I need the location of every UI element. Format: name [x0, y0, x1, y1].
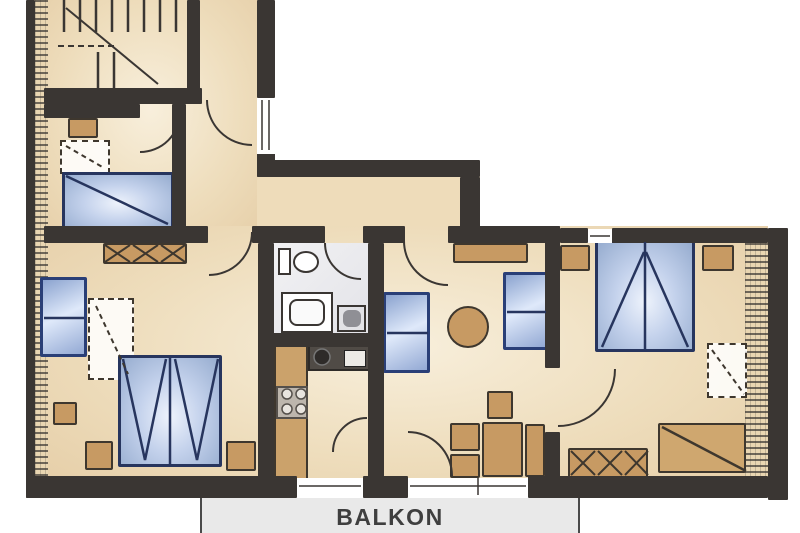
- wardrobe-dashed: [707, 343, 747, 398]
- balcony: BALKON: [200, 498, 580, 533]
- kitchen-drainer: [344, 350, 366, 367]
- wall-segment: [545, 226, 560, 368]
- wall-segment: [44, 226, 208, 243]
- wall-segment: [460, 177, 480, 232]
- nightstand: [560, 245, 590, 271]
- sofa: [383, 292, 430, 373]
- dining-table: [482, 422, 523, 477]
- chair: [450, 454, 480, 478]
- wall-segment: [26, 476, 297, 498]
- wall-segment: [363, 476, 408, 498]
- window: [297, 478, 363, 495]
- wall-segment: [545, 432, 560, 480]
- hatched-wall-right: [745, 243, 768, 476]
- single-bed-brown: [658, 423, 746, 473]
- balcony-label: BALKON: [336, 504, 443, 531]
- wall-segment: [257, 160, 480, 177]
- stove: [276, 386, 308, 419]
- single-bed: [62, 172, 174, 229]
- wall-segment: [252, 226, 325, 243]
- sideboard: [453, 243, 528, 263]
- drawer-chest: [103, 243, 187, 264]
- wall-segment: [258, 243, 274, 485]
- double-bed: [595, 240, 695, 352]
- wall-segment: [768, 228, 788, 500]
- wall-segment: [258, 333, 384, 347]
- bench: [525, 424, 545, 477]
- wall-segment: [44, 88, 202, 104]
- sofa: [503, 272, 548, 350]
- wall-segment: [448, 226, 560, 243]
- wall-segment: [257, 0, 275, 98]
- washbasin-bowl: [289, 299, 325, 326]
- window: [588, 229, 612, 243]
- wall-segment: [612, 228, 768, 243]
- wall-segment: [528, 476, 768, 498]
- chair: [450, 423, 480, 451]
- wall-segment: [172, 104, 186, 232]
- wall-segment: [187, 0, 200, 90]
- wall-segment: [44, 104, 140, 118]
- window: [408, 478, 528, 495]
- nightstand: [85, 441, 113, 470]
- drawer-chest: [568, 448, 648, 478]
- toilet-tank: [278, 248, 291, 275]
- wall-segment: [26, 0, 35, 498]
- nightstand: [226, 441, 256, 471]
- window: [257, 98, 275, 154]
- double-bed: [118, 355, 222, 467]
- bidet-bowl: [343, 310, 361, 327]
- chair: [487, 391, 513, 419]
- stool: [53, 402, 77, 425]
- sofa: [40, 277, 87, 357]
- bedside-table: [68, 118, 98, 138]
- wall-segment: [560, 228, 588, 243]
- floor-plan: BALKON: [0, 0, 800, 533]
- nightstand: [702, 245, 734, 271]
- wall-segment: [368, 243, 384, 485]
- wall-segment: [363, 226, 405, 243]
- wardrobe-dashed: [60, 140, 110, 174]
